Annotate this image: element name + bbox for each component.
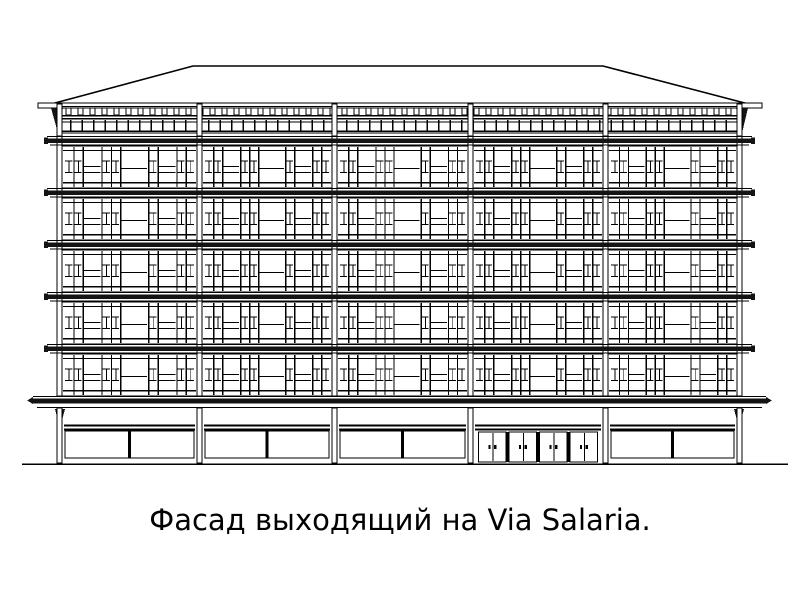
storefront-bay — [64, 425, 195, 459]
ground-pier — [737, 408, 742, 463]
roof-parapet — [59, 106, 739, 133]
window-bay — [202, 302, 332, 344]
double-door — [479, 432, 507, 462]
window-bay — [202, 354, 332, 396]
window-bay — [473, 250, 603, 292]
door-handle — [549, 445, 551, 449]
floor-band-5 — [62, 354, 737, 396]
floor-band-2 — [62, 198, 737, 240]
ground-pier — [332, 408, 337, 463]
window-bay — [608, 354, 737, 396]
window-bay — [473, 354, 603, 396]
cornice-band — [44, 344, 755, 354]
window-bay — [608, 146, 737, 188]
door-handle — [519, 445, 521, 449]
ground-pier — [57, 408, 62, 463]
storefront-window — [340, 431, 465, 458]
door-handle — [524, 445, 526, 449]
ground-pier — [468, 408, 473, 463]
window-bay — [337, 146, 468, 188]
window-bay — [473, 302, 603, 344]
door-handle — [580, 445, 582, 449]
ground-floor-canopy — [27, 396, 772, 428]
drawing-caption: Фасад выходящий на Via Salaria. — [0, 503, 800, 537]
storefront-bay — [610, 425, 735, 459]
window-bay — [337, 302, 468, 344]
window-bay — [62, 198, 197, 240]
window-bay — [473, 198, 603, 240]
door-handle — [488, 445, 490, 449]
double-door — [540, 432, 568, 462]
cornice-band — [44, 136, 755, 146]
ground-pier — [197, 408, 202, 463]
cornice-band — [44, 292, 755, 302]
window-bay — [202, 146, 332, 188]
door-handle — [555, 445, 557, 449]
window-bay — [337, 354, 468, 396]
window-bay — [473, 146, 603, 188]
cornice-band — [44, 188, 755, 198]
door-handle — [585, 445, 587, 449]
storefront-bay — [339, 425, 466, 459]
storefront-bay — [204, 425, 330, 459]
door-handle — [494, 445, 496, 449]
window-bay — [62, 146, 197, 188]
ground-line — [22, 464, 788, 466]
storefront-window — [205, 431, 329, 458]
double-door — [509, 432, 537, 462]
floor-band-4 — [62, 302, 737, 344]
entrance-bay — [475, 425, 601, 463]
ground-floor — [57, 408, 742, 463]
window-bay — [62, 354, 197, 396]
window-bay — [62, 302, 197, 344]
window-bay — [202, 250, 332, 292]
window-bay — [608, 250, 737, 292]
storefront-window — [611, 431, 734, 458]
window-bay — [202, 198, 332, 240]
window-bay — [608, 302, 737, 344]
floor-window-bands — [62, 146, 737, 396]
floor-band-1 — [62, 146, 737, 188]
building-elevation-drawing — [0, 0, 800, 480]
double-door — [570, 432, 598, 462]
floor-band-3 — [62, 250, 737, 292]
cornice-band — [44, 240, 755, 250]
window-bay — [62, 250, 197, 292]
window-bay — [608, 198, 737, 240]
window-bay — [337, 198, 468, 240]
storefront-window — [65, 431, 194, 458]
facade-piers — [57, 136, 742, 396]
window-bay — [337, 250, 468, 292]
ground-pier — [603, 408, 608, 463]
